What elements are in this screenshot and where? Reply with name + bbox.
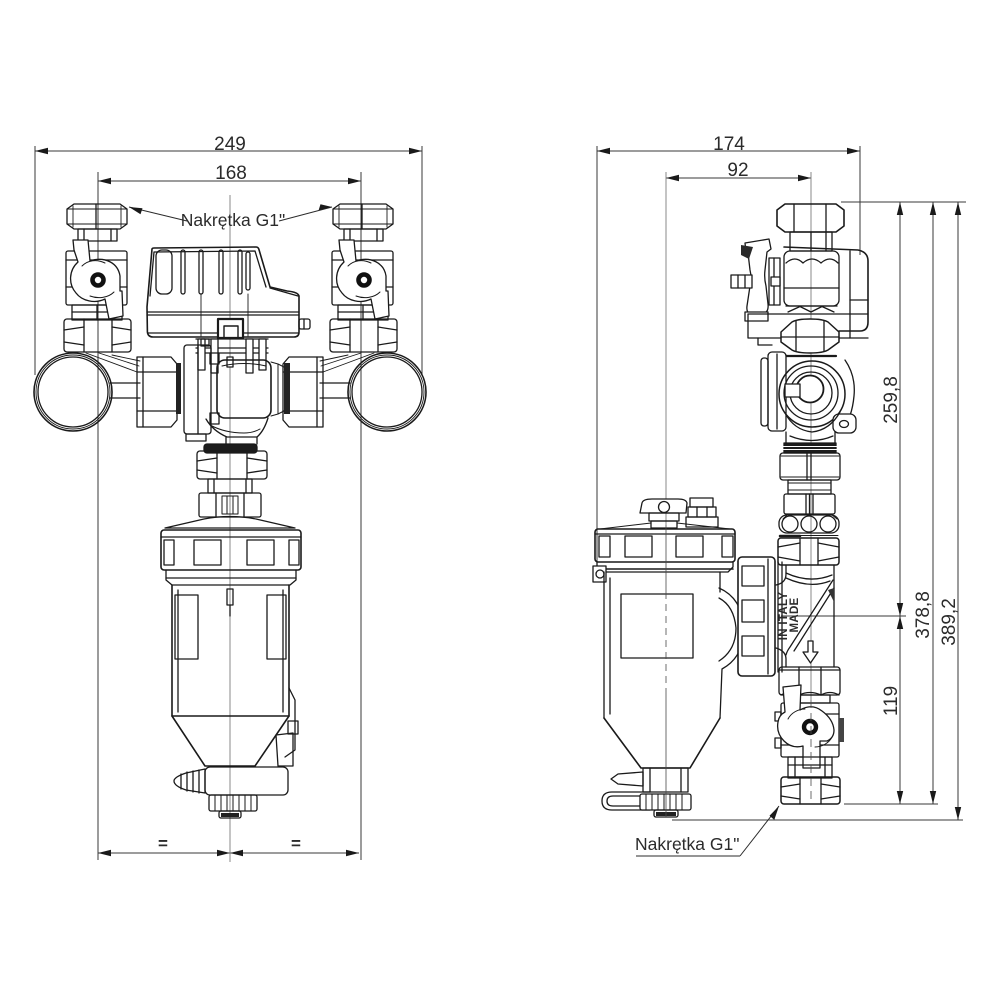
svg-text:249: 249 (214, 134, 246, 155)
svg-text:MADE: MADE (789, 597, 801, 632)
svg-text:259,8: 259,8 (881, 376, 902, 424)
svg-text:174: 174 (713, 134, 745, 155)
svg-text:IN ITALY: IN ITALY (778, 592, 790, 640)
svg-text:389,2: 389,2 (939, 598, 960, 646)
svg-text:92: 92 (727, 160, 748, 181)
svg-text:Nakrętka G1": Nakrętka G1" (181, 210, 285, 230)
svg-text:=: = (158, 834, 168, 853)
svg-text:119: 119 (881, 686, 902, 716)
svg-text:Nakrętka G1": Nakrętka G1" (635, 834, 739, 854)
svg-text:=: = (291, 834, 301, 853)
svg-text:378,8: 378,8 (913, 591, 934, 639)
svg-text:168: 168 (215, 163, 247, 184)
